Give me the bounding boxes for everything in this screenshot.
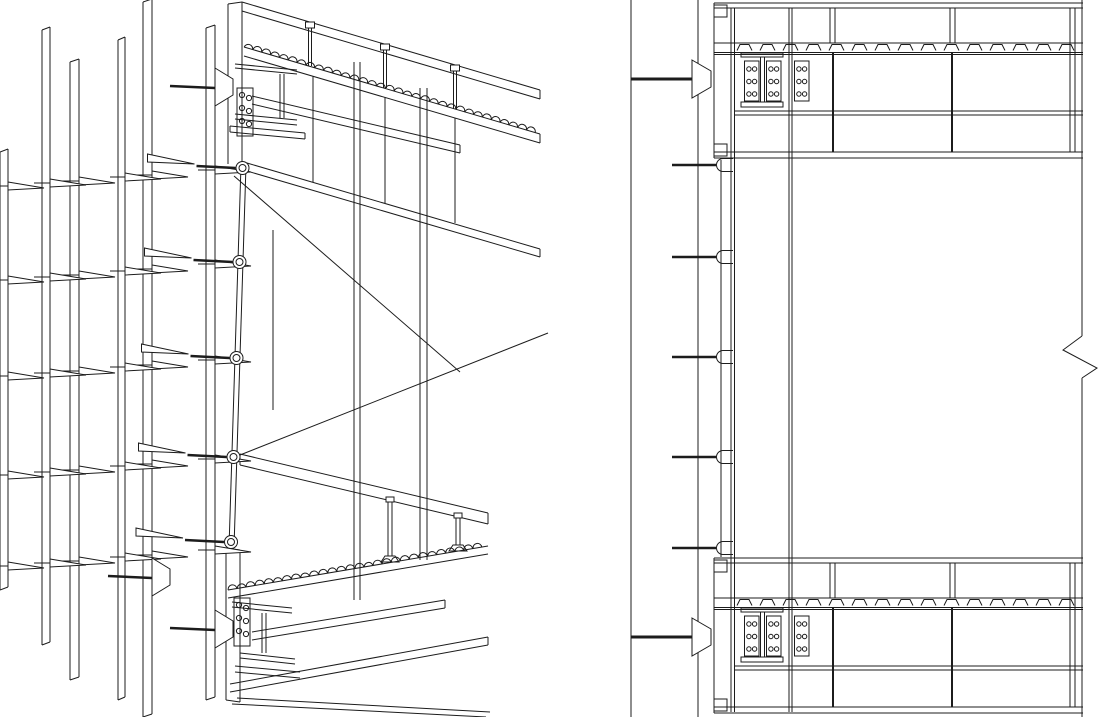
pin-connector <box>230 352 243 365</box>
drawing-area <box>0 0 1100 717</box>
pin-connector <box>227 451 240 464</box>
curtain-wall-detail-sheet <box>0 0 1100 717</box>
stud-cap <box>381 44 390 50</box>
rod-cap <box>454 513 462 518</box>
rod-cap <box>386 497 394 502</box>
pin-connector <box>233 256 246 269</box>
technical-drawing-canvas <box>0 0 1100 717</box>
pin-connector <box>236 162 249 175</box>
stud-cap <box>451 65 460 71</box>
stud-cap <box>306 22 315 28</box>
pin-connector <box>225 536 238 549</box>
